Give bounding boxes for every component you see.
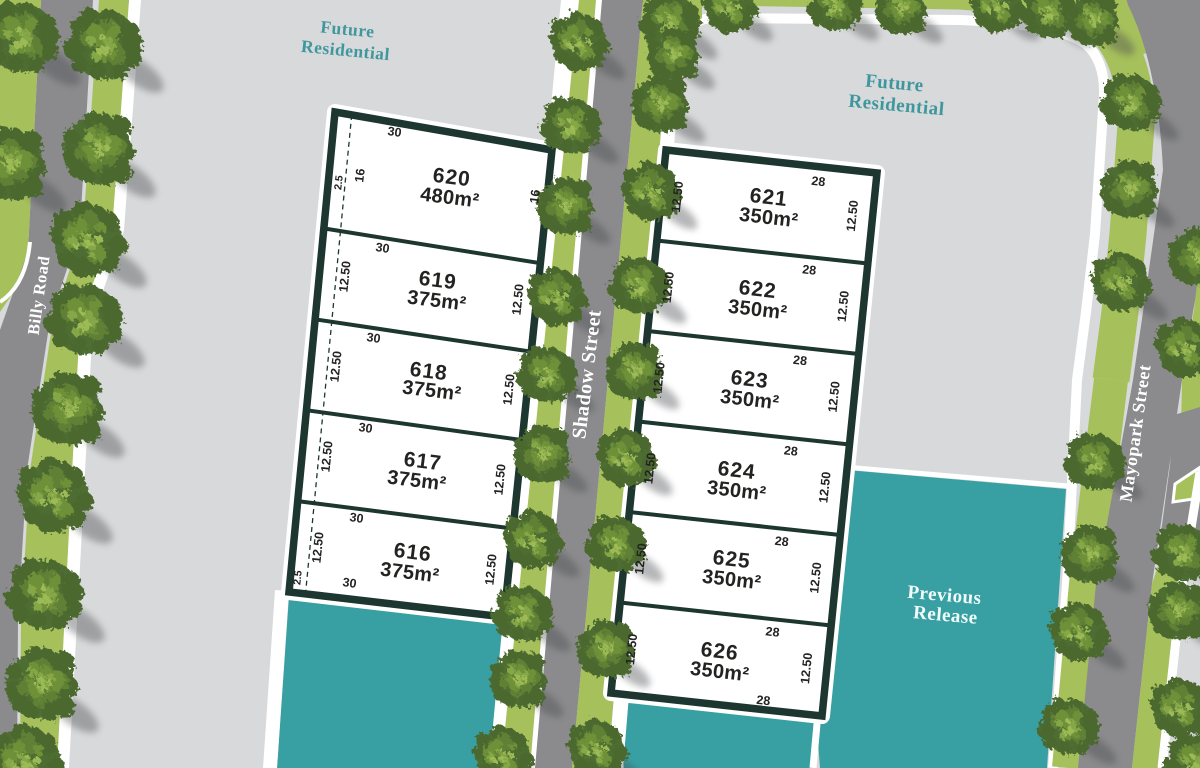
svg-text:28: 28 — [774, 534, 789, 549]
svg-text:28: 28 — [765, 624, 780, 639]
svg-text:30: 30 — [358, 420, 374, 436]
svg-text:16: 16 — [352, 168, 368, 184]
svg-text:28: 28 — [756, 693, 771, 708]
svg-text:30: 30 — [366, 330, 382, 346]
svg-text:2.5: 2.5 — [291, 570, 304, 586]
svg-text:28: 28 — [802, 262, 817, 277]
svg-text:30: 30 — [342, 575, 358, 591]
svg-text:30: 30 — [375, 240, 391, 256]
svg-text:30: 30 — [349, 510, 365, 526]
svg-text:2.5: 2.5 — [332, 175, 346, 191]
svg-text:16: 16 — [527, 189, 543, 205]
svg-text:28: 28 — [783, 443, 798, 458]
svg-text:28: 28 — [792, 353, 807, 368]
svg-text:30: 30 — [387, 124, 403, 140]
svg-text:28: 28 — [811, 174, 826, 189]
